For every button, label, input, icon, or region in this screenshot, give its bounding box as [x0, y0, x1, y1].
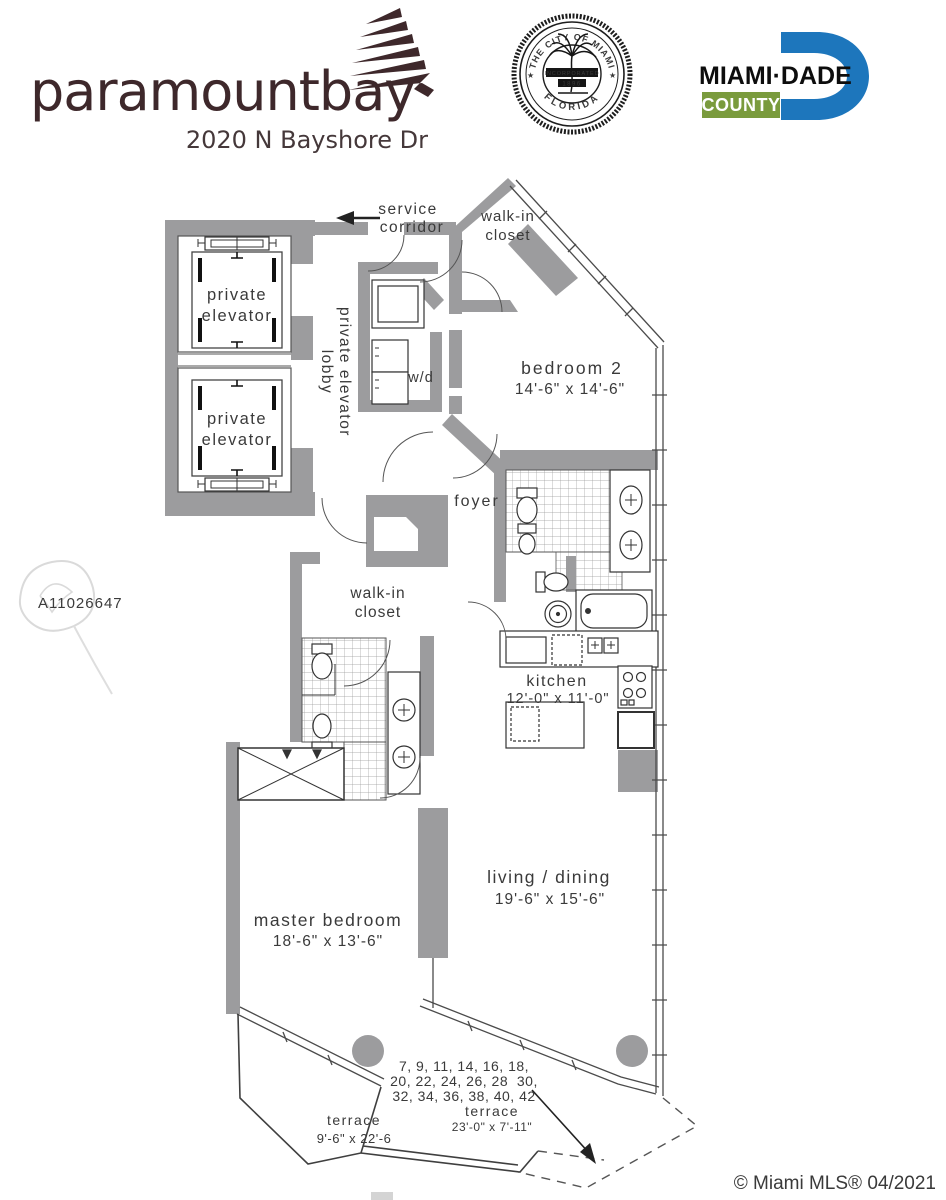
label-service-2: corridor [380, 219, 445, 236]
label-floors-2: 20, 22, 24, 26, 28 30, [390, 1073, 538, 1089]
label-lobby-1: private elevator [336, 307, 353, 437]
label-elevator1-2: elevator [202, 307, 273, 325]
label-elevator2-1: private [207, 410, 267, 428]
bottom-edge-mark [371, 1192, 393, 1200]
column-right [616, 1035, 648, 1067]
label-closet-master-2: closet [355, 604, 402, 621]
private-elevators [178, 236, 291, 492]
label-elevator2-2: elevator [202, 431, 273, 449]
label-terrace-left: terrace [327, 1112, 381, 1128]
terrace-arrow [532, 1090, 596, 1164]
mls-id-text: A11026647 [38, 595, 123, 612]
floor-plan: service corridor walk-in closet private … [0, 0, 946, 1200]
label-living-dims: 19'-6" x 15'-6" [495, 891, 605, 908]
label-wd: w/d [407, 370, 434, 386]
label-service-1: service [378, 201, 438, 218]
label-lobby-2: lobby [318, 350, 335, 395]
label-elevator1-1: private [207, 286, 267, 304]
mls-watermark: A11026647 [20, 561, 123, 694]
column-left [352, 1035, 384, 1067]
label-master: master bedroom [254, 910, 402, 930]
label-foyer: foyer [454, 493, 500, 510]
county-logo-sub: COUNTY [702, 92, 780, 118]
label-living: living / dining [487, 867, 611, 887]
county-logo-name: MIAMI·DADE [699, 62, 859, 91]
label-terrace-main-dims: 23'-0" x 7'-11" [452, 1120, 532, 1134]
label-master-dims: 18'-6" x 13'-6" [273, 933, 383, 950]
label-terrace-main: terrace [465, 1103, 519, 1119]
label-floors-1: 7, 9, 11, 14, 16, 18, [399, 1058, 529, 1074]
label-kitchen-dims: 12'-0" x 11'-0" [506, 691, 609, 707]
label-closet-master-1: walk-in [349, 585, 405, 602]
label-closet-b2-2: closet [485, 227, 530, 244]
floorplan-page: paramountbay 2020 N Bayshore Dr THE CITY… [0, 0, 946, 1200]
label-kitchen: kitchen [526, 673, 587, 690]
label-closet-b2-1: walk-in [480, 208, 535, 225]
mls-copyright-text: © Miami MLS® 04/2021 [734, 1173, 936, 1194]
label-terrace-left-dims: 9'-6" x 22'-6 [317, 1131, 392, 1146]
label-bedroom2: bedroom 2 [521, 358, 623, 378]
label-floors-3: 32, 34, 36, 38, 40, 42 [392, 1088, 535, 1104]
terrace-dashed-outline [518, 1098, 697, 1188]
label-bedroom2-dims: 14'-6" x 14'-6" [515, 381, 625, 398]
